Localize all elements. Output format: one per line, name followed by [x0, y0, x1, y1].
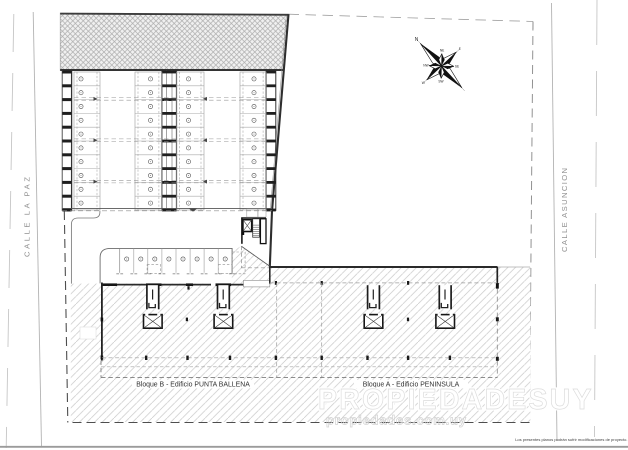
svg-text:PROPIEDADESUY: PROPIEDADESUY [318, 384, 594, 416]
svg-text:W: W [422, 81, 425, 85]
svg-text:S: S [457, 82, 459, 86]
svg-text:Los presentes planos podrán su: Los presentes planos podrán sufrir modif… [515, 437, 627, 442]
svg-text:E: E [459, 47, 461, 51]
svg-text:SW: SW [438, 80, 443, 84]
svg-text:Bloque B - Edificio PUNTA BALL: Bloque B - Edificio PUNTA BALLENA [136, 382, 250, 389]
svg-text:propiedades.com.uy: propiedades.com.uy [326, 413, 467, 428]
svg-text:NE: NE [440, 49, 444, 53]
svg-text:CALLE LA PAZ: CALLE LA PAZ [23, 174, 32, 257]
svg-text:NW: NW [423, 64, 428, 68]
svg-text:N: N [415, 37, 419, 43]
svg-text:SE: SE [455, 65, 459, 69]
svg-text:CALLE ASUNCION: CALLE ASUNCION [560, 167, 569, 252]
